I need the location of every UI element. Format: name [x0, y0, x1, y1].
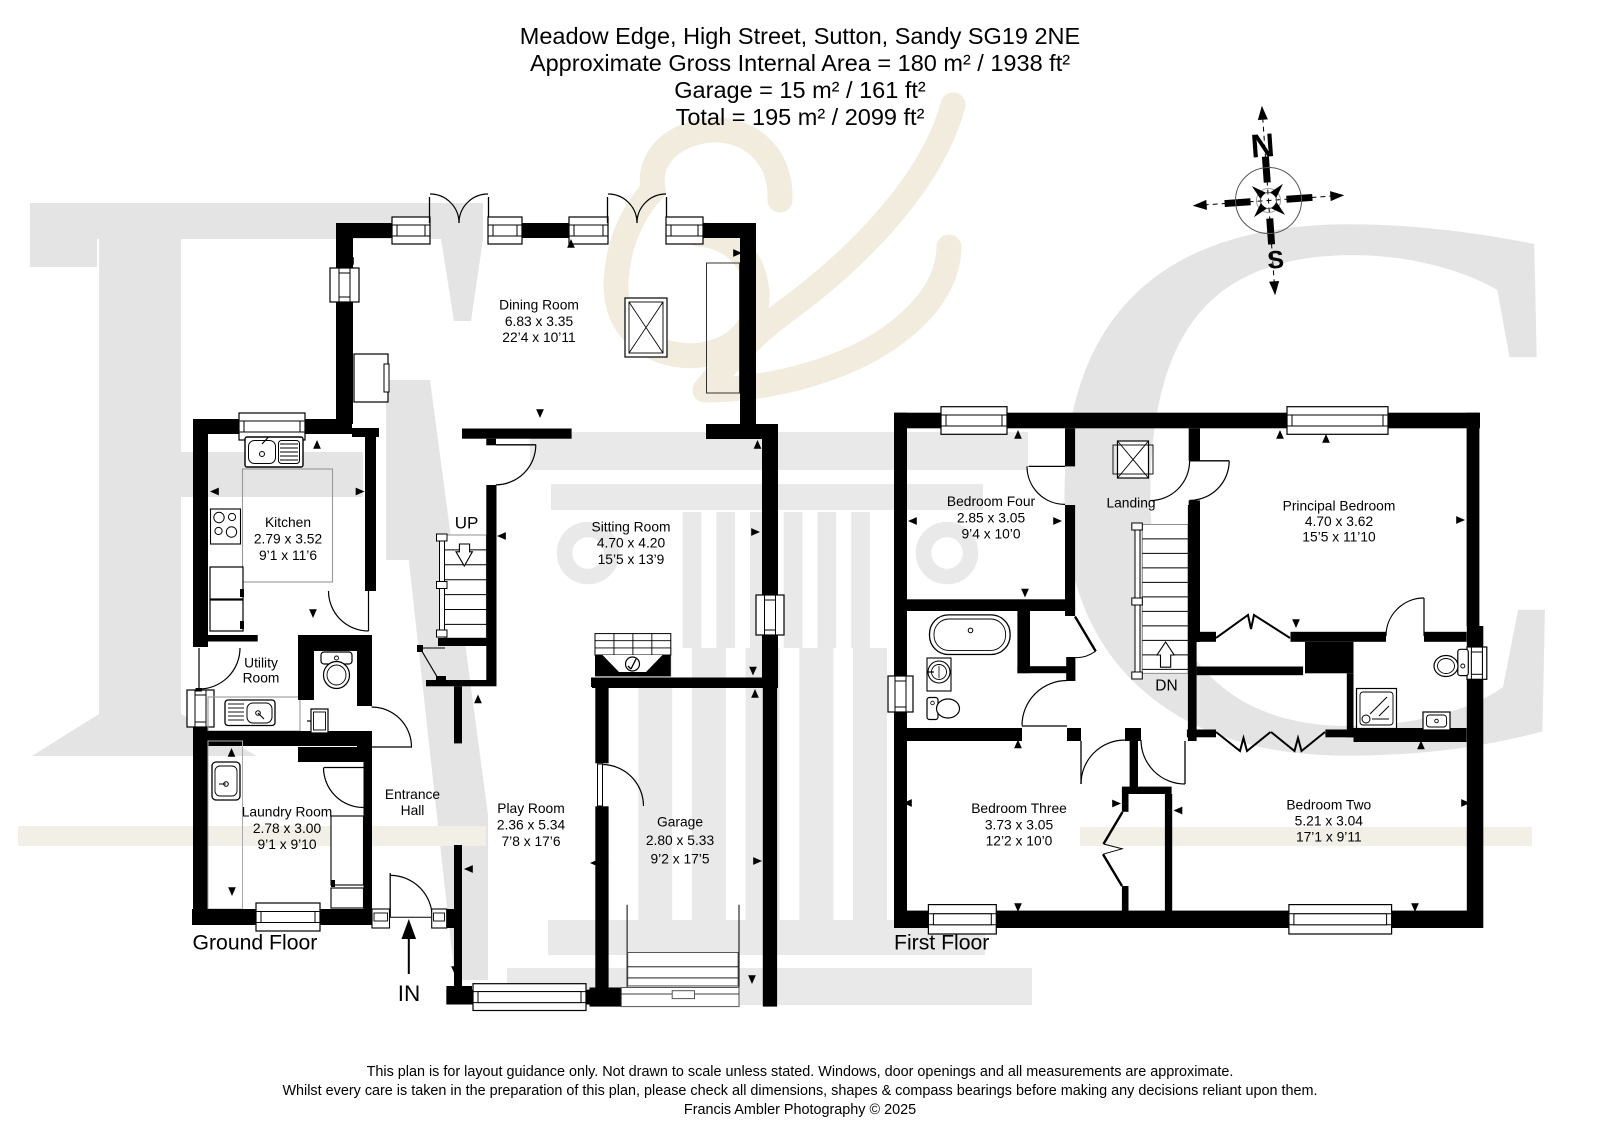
- svg-text:UP: UP: [455, 514, 479, 533]
- svg-text:This plan is for layout guidan: This plan is for layout guidance only. N…: [367, 1064, 1234, 1080]
- svg-text:Sitting Room4.70 x 4.2015’5 x: Sitting Room4.70 x 4.2015’5 x 13’9: [592, 519, 671, 567]
- svg-text:Whilst every care is taken in: Whilst every care is taken in the prepar…: [282, 1083, 1317, 1099]
- svg-text:First Floor: First Floor: [894, 932, 989, 955]
- svg-text:S: S: [1266, 246, 1285, 275]
- svg-text:Ground Floor: Ground Floor: [193, 932, 318, 955]
- svg-text:Meadow Edge, High Street, Sutt: Meadow Edge, High Street, Sutton, Sandy …: [520, 23, 1080, 49]
- svg-text:Landing: Landing: [1106, 495, 1155, 510]
- svg-text:Dining Room6.83 x 3.3522’4 x 1: Dining Room6.83 x 3.3522’4 x 10’11: [499, 298, 579, 346]
- svg-text:DN: DN: [1155, 678, 1177, 695]
- svg-text:N: N: [1249, 126, 1275, 165]
- svg-text:Approximate Gross Internal Are: Approximate Gross Internal Area = 180 m²…: [530, 50, 1070, 76]
- svg-text:Garage = 15 m² / 161 ft²: Garage = 15 m² / 161 ft²: [674, 77, 926, 103]
- svg-text:Francis Ambler Photography © 2: Francis Ambler Photography © 2025: [684, 1102, 916, 1118]
- svg-text:C: C: [1030, 43, 1591, 920]
- svg-text:Total = 195 m² / 2099 ft²: Total = 195 m² / 2099 ft²: [676, 104, 925, 130]
- svg-text:IN: IN: [398, 981, 421, 1006]
- svg-text:Bedroom Two5.21 x 3.0417’1 x 9: Bedroom Two5.21 x 3.0417’1 x 9’11: [1286, 798, 1371, 845]
- svg-text:Play Room2.36 x 5.347’8 x 17’6: Play Room2.36 x 5.347’8 x 17’6: [497, 801, 566, 849]
- svg-text:UtilityRoom: UtilityRoom: [243, 655, 280, 685]
